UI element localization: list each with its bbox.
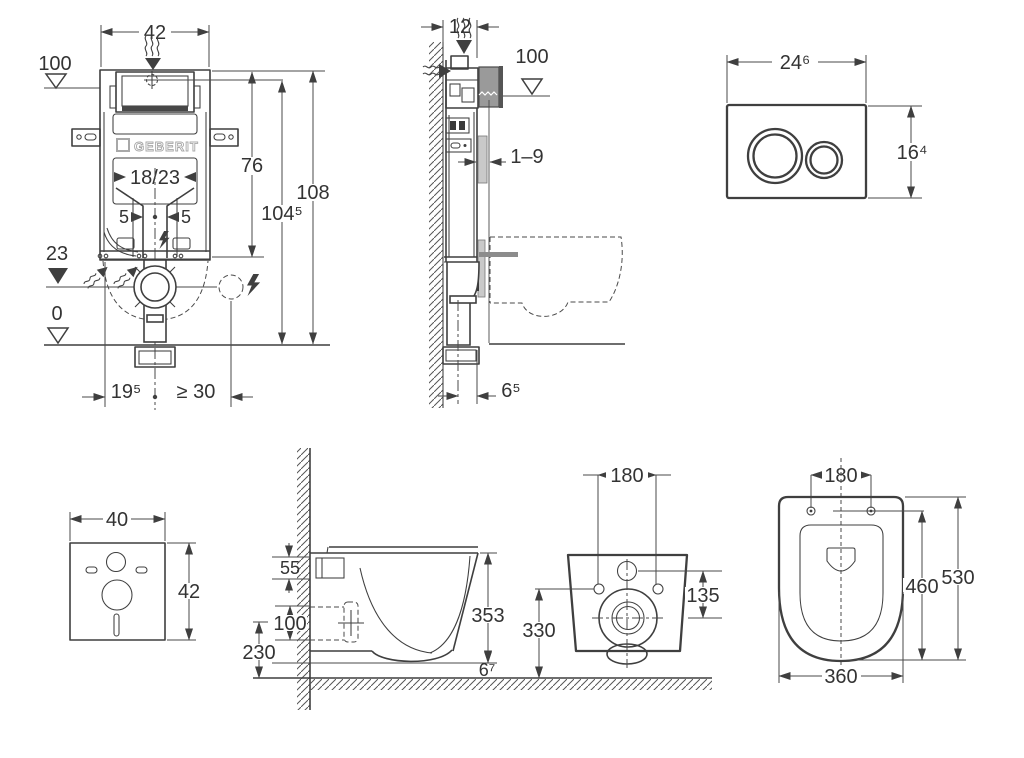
dim-rear-holes: 180 [610,465,643,487]
dim-total-width: 360 [824,666,857,688]
wc-side-view: 55 100 230 353 6⁷ [242,448,712,710]
dim-total-length: 530 [941,567,974,589]
dim-mat-height: 42 [178,581,200,603]
dim-level-100-side: 100 [515,46,548,68]
frame-side-view: 12 100 [421,16,625,408]
dim-offset-19-5: 19⁵ [111,381,142,403]
supply-arrow-icon [439,64,451,78]
sound-insulation-mat [70,543,165,640]
dim-min-30: ≥ 30 [177,381,216,403]
level-marker-filled [48,268,68,284]
wc-outline-dashed [490,237,622,316]
dim-height-108: 108 [296,182,329,204]
mat-drain-hole [102,580,132,610]
sound-mat-view: 40 42 [70,509,203,640]
dim-drain-height: 230 [242,642,275,664]
dim-height-76: 76 [241,155,263,177]
installation-drawing: 42 100 GEBERIT 18/23 [0,0,1024,758]
supply-arrow-icon [456,40,472,54]
dim-height-104-5: 104⁵ [261,203,303,225]
electrical-conduit [219,275,243,299]
wc-top-view: 180 460 530 360 [779,458,977,688]
dim-plate-height: 16⁴ [897,142,928,164]
dim-plate-width: 24⁶ [780,52,810,74]
wc-rear-view: 180 135 330 [522,465,722,678]
water-inflow-icon [83,263,111,290]
mount-hole-right [653,584,663,594]
dim-frame-width: 42 [144,22,166,44]
flush-button-large [748,129,802,183]
dim-offset-left: 5 [119,207,129,227]
dim-level-0: 0 [51,303,62,325]
geberit-logo: GEBERIT [134,139,199,154]
fixing-rod [479,252,518,257]
dim-mat-width: 40 [106,509,128,531]
dim-wc-height: 353 [471,605,504,627]
supply-arrow-icon [145,58,161,70]
flush-plate-view: 24⁶ 16⁴ [727,52,934,198]
geberit-logo-square [117,139,129,151]
technical-drawing-page: 42 100 GEBERIT 18/23 [0,0,1024,758]
dim-level-100: 100 [38,53,71,75]
level-marker-open [46,74,66,88]
level-marker-open [48,328,68,343]
dim-adjust-100: 100 [273,613,306,635]
electrical-bolt-icon [159,231,170,249]
frame-front-view: 42 100 GEBERIT 18/23 [38,22,332,410]
dim-offset-right: 5 [181,207,191,227]
mount-hole-left [594,584,604,594]
mat-inlet-hole [107,553,126,572]
wall-finish-strip [478,136,487,183]
electrical-bolt-icon [247,274,260,296]
dim-holes-to-front: 460 [905,576,938,598]
dim-depth-12: 12 [449,16,471,38]
dim-outlet-offset: 6⁵ [501,380,520,402]
wall-section [429,42,443,408]
dim-inlet-drain: 135 [686,585,719,607]
dim-gap: 6⁷ [479,660,496,680]
dim-55: 55 [280,558,300,578]
level-marker-open [522,79,542,94]
dim-holes-height: 330 [522,620,555,642]
dim-level-23: 23 [46,243,68,265]
dim-tile-range: 1–9 [510,146,543,168]
